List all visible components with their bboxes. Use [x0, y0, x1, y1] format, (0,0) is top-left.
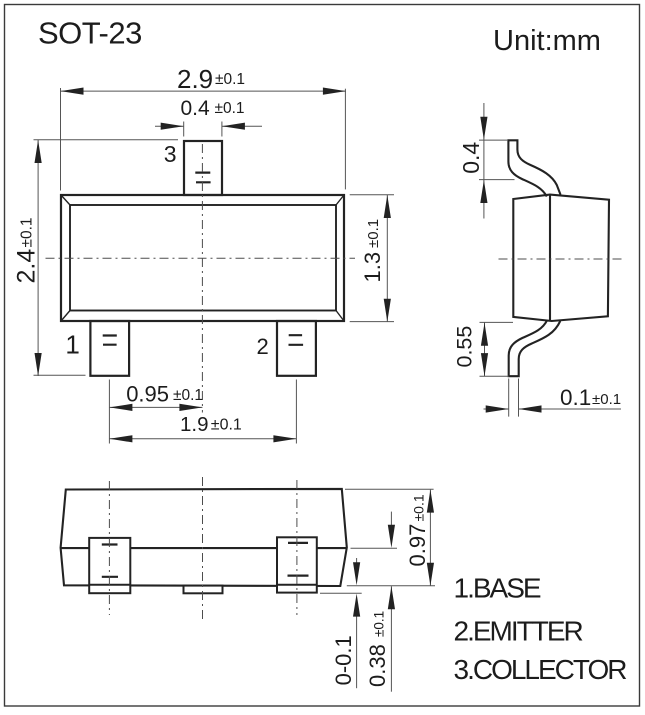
svg-text:3: 3 [164, 141, 177, 167]
svg-text:0.4: 0.4 [458, 142, 484, 174]
svg-text:Unit:mm: Unit:mm [493, 25, 601, 57]
svg-text:±0.1: ±0.1 [173, 387, 203, 404]
svg-text:±0.1: ±0.1 [211, 417, 242, 434]
svg-text:SOT-23: SOT-23 [38, 16, 142, 51]
svg-text:±0.1: ±0.1 [18, 217, 35, 247]
svg-text:0.4: 0.4 [181, 97, 211, 120]
svg-text:1.BASE: 1.BASE [454, 573, 541, 604]
svg-text:3.COLLECTOR: 3.COLLECTOR [454, 654, 627, 685]
svg-text:±0.1: ±0.1 [215, 71, 245, 88]
svg-text:2.EMITTER: 2.EMITTER [454, 616, 583, 647]
svg-text:0.55: 0.55 [453, 326, 477, 368]
svg-text:±0.1: ±0.1 [365, 219, 382, 248]
svg-text:1.3: 1.3 [360, 252, 385, 283]
svg-text:0.1: 0.1 [560, 385, 591, 410]
svg-text:0.97: 0.97 [405, 524, 430, 567]
svg-text:2.9: 2.9 [177, 64, 213, 94]
svg-text:±0.1: ±0.1 [215, 100, 245, 117]
svg-text:1: 1 [65, 330, 79, 360]
svg-text:2: 2 [256, 334, 268, 359]
svg-text:0-0.1: 0-0.1 [331, 635, 356, 685]
svg-text:±0.1: ±0.1 [592, 391, 621, 408]
svg-text:0.38: 0.38 [365, 644, 390, 687]
svg-text:0.95: 0.95 [126, 382, 169, 407]
svg-text:2.4: 2.4 [12, 249, 40, 284]
svg-text:±0.1: ±0.1 [411, 494, 427, 521]
svg-text:±0.1: ±0.1 [371, 611, 386, 637]
svg-text:1.9: 1.9 [180, 413, 209, 436]
